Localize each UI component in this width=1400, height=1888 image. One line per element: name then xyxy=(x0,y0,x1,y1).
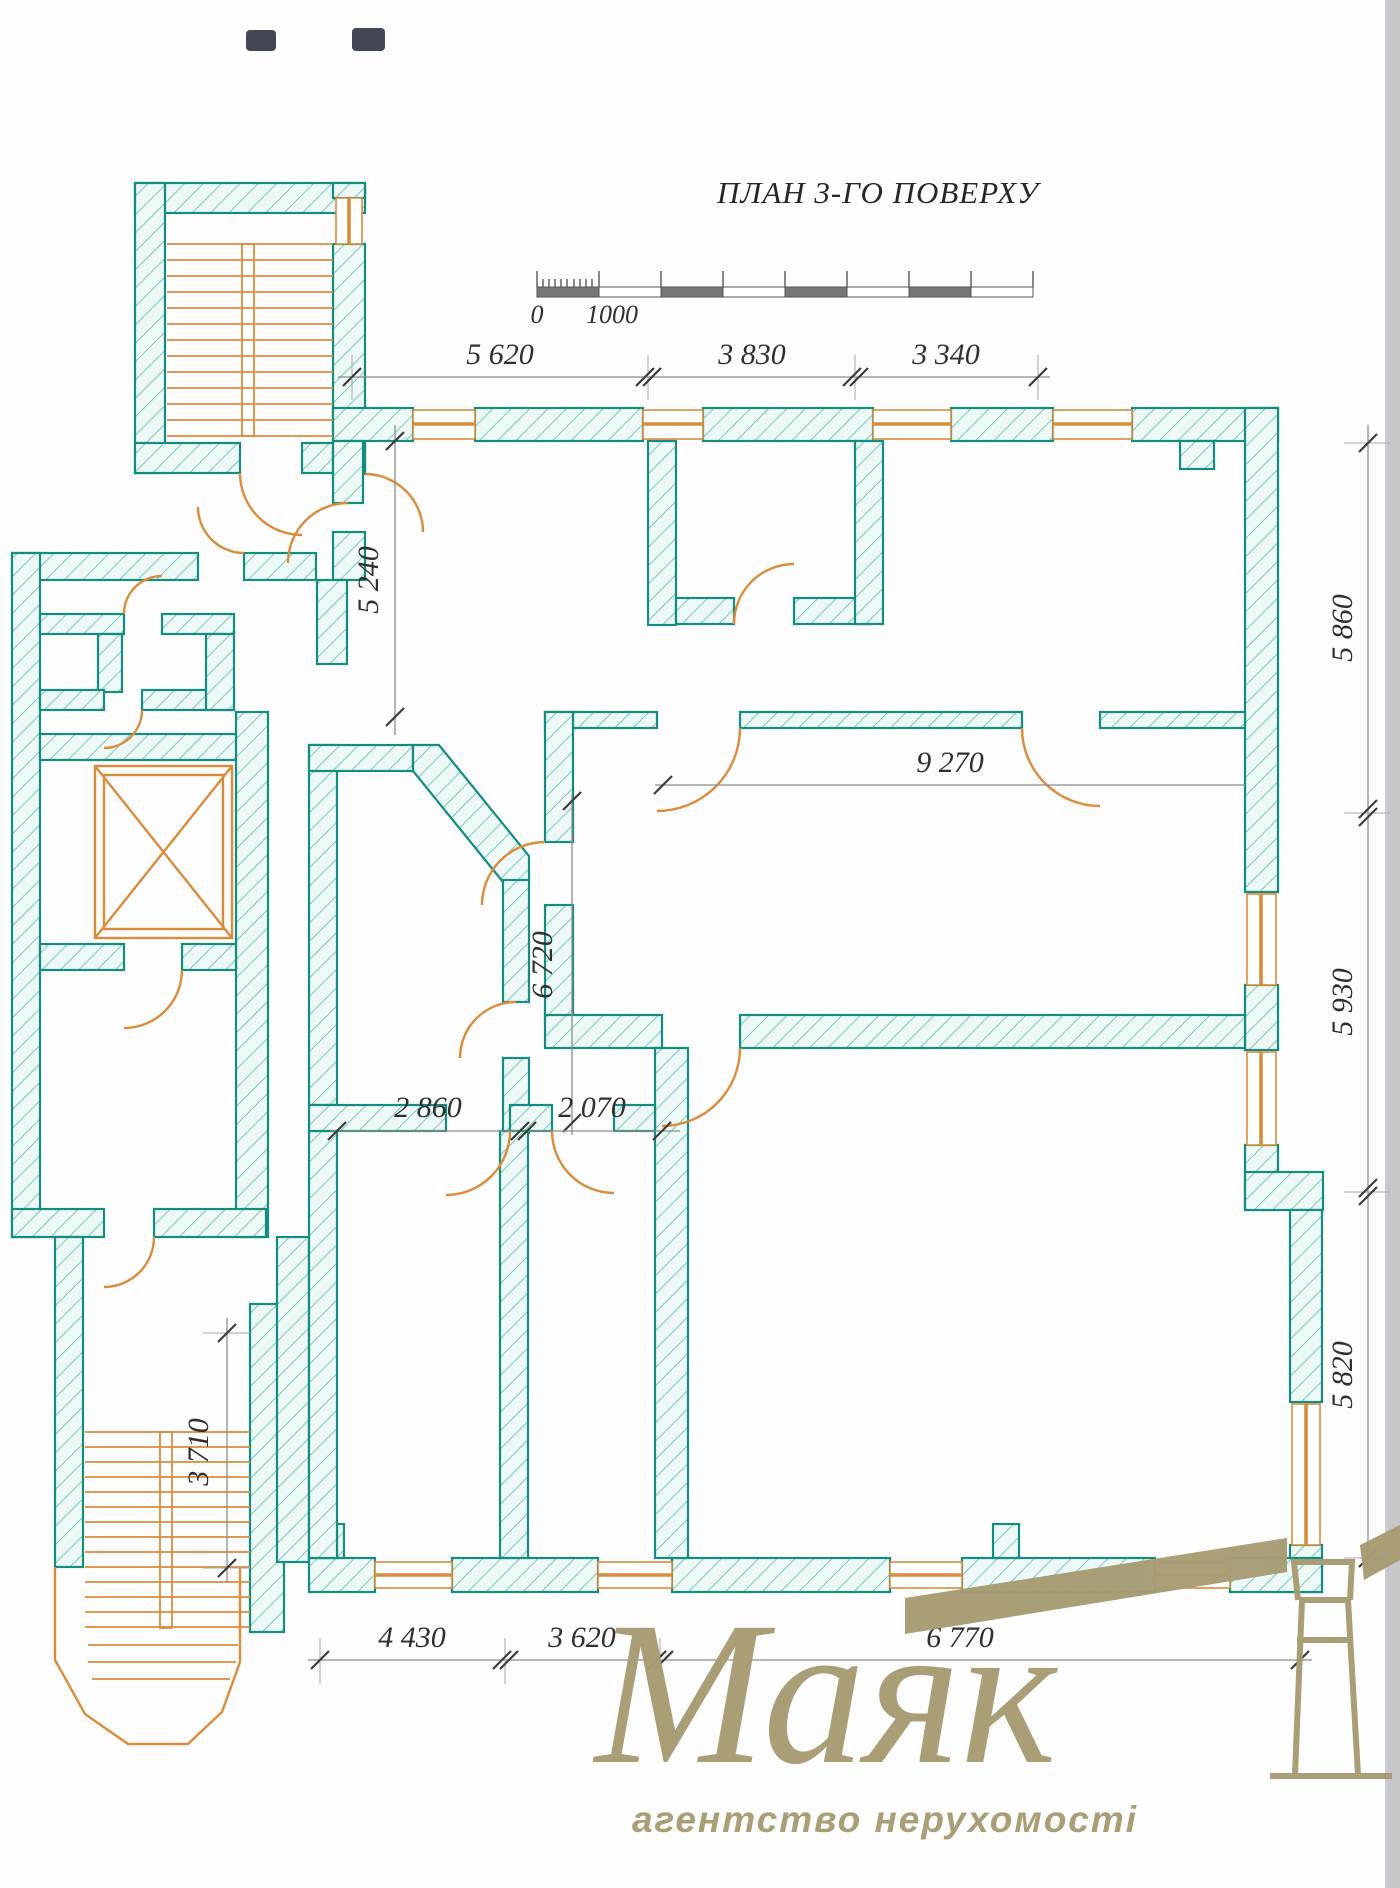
dim-label-top-1: 5 620 xyxy=(466,338,534,371)
window xyxy=(873,410,951,439)
window xyxy=(413,410,475,439)
watermark-brand: Маяк xyxy=(592,1580,1059,1807)
dim-label-interior-3710: 3 710 xyxy=(182,1418,215,1487)
window xyxy=(1247,1052,1276,1145)
dim-label-right-3: 5 820 xyxy=(1326,1341,1359,1409)
dim-label-interior-6720: 6 720 xyxy=(526,931,559,999)
scale-ticks xyxy=(537,271,1033,287)
scan-artifact xyxy=(246,28,385,51)
window xyxy=(375,1562,452,1588)
dim-label-top-2: 3 830 xyxy=(717,338,786,371)
window xyxy=(1053,410,1132,439)
dimension-top: 5 620 3 830 3 340 xyxy=(338,338,1050,400)
floor-plan-drawing: ПЛАН 3-ГО ПОВЕРХУ 0 1000 xyxy=(0,0,1400,1888)
scanned-floor-plan-page: ПЛАН 3-ГО ПОВЕРХУ 0 1000 xyxy=(0,0,1400,1888)
staircase-top-left xyxy=(167,244,333,436)
bay-window-outline xyxy=(55,1567,240,1744)
plan-title: ПЛАН 3-ГО ПОВЕРХУ xyxy=(716,175,1042,210)
dim-label-right-1: 5 860 xyxy=(1326,594,1359,662)
dim-label-interior-5240: 5 240 xyxy=(352,546,385,614)
window xyxy=(1292,1404,1320,1545)
scale-zero-label: 0 xyxy=(531,300,544,329)
staircase-bottom-left xyxy=(85,1432,250,1628)
watermark-tagline: агентство нерухомості xyxy=(632,1799,1138,1840)
page-edge xyxy=(1386,0,1400,1888)
scale-bar: 0 1000 xyxy=(531,271,1034,329)
dim-label-bottom-1: 4 430 xyxy=(378,1621,446,1654)
dim-label-interior-2860: 2 860 xyxy=(394,1091,462,1124)
window xyxy=(336,198,362,244)
dim-label-right-2: 5 930 xyxy=(1326,968,1359,1036)
dim-label-interior-9270: 9 270 xyxy=(916,746,984,779)
scale-thousand-label: 1000 xyxy=(586,300,638,329)
lighthouse-icon xyxy=(1270,1562,1392,1776)
dim-label-interior-2070: 2 070 xyxy=(558,1091,626,1124)
window xyxy=(643,410,703,439)
elevator-shaft xyxy=(95,766,232,938)
window xyxy=(1247,894,1276,985)
dim-label-top-3: 3 340 xyxy=(911,338,980,371)
dimension-right: 5 860 5 930 5 820 xyxy=(1326,425,1390,1572)
